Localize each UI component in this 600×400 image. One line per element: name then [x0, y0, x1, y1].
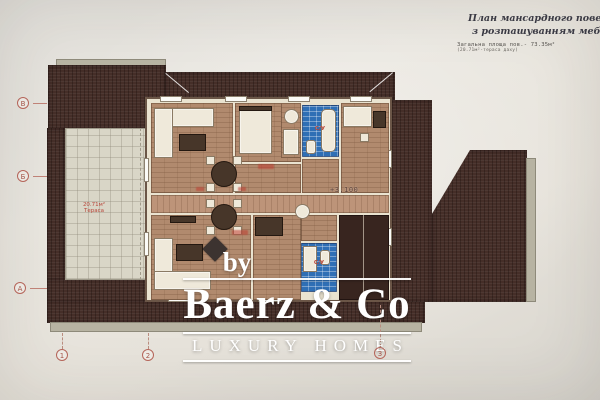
axis-leader [30, 288, 47, 289]
axis-leader [62, 333, 63, 349]
roof-right-mass [432, 150, 527, 302]
watermark-brand: Baerz & Co [183, 280, 411, 330]
bed-top-middle [239, 106, 272, 154]
dining-chair [233, 156, 242, 165]
coffee-table-top [179, 134, 206, 151]
room-label-blob [232, 230, 248, 235]
room-label-blob [238, 187, 246, 191]
roof-gutter-right [526, 158, 536, 302]
dining-chair [206, 156, 215, 165]
terrace-label: 20.71м² Тераса [72, 202, 116, 214]
dining-chair [206, 226, 215, 235]
axis-row-marker-v: В [17, 97, 29, 109]
window-top-1 [160, 96, 182, 102]
niche-laundry-bottom [301, 215, 337, 241]
room-label-blob [196, 187, 204, 191]
drawing-title-line2: з розташуванням меблів М 1: [468, 25, 600, 38]
wardrobe-bottom [255, 217, 283, 236]
elevation-mark: +3,100 [330, 186, 358, 194]
desk-top-right [373, 111, 386, 128]
window-top-4 [350, 96, 372, 102]
axis-row-marker-b: Б [17, 170, 29, 182]
dining-chair [206, 199, 215, 208]
drawing-title-line1: План мансардного поверху [468, 12, 600, 25]
watermark-by: by [63, 248, 411, 276]
window-top-3 [288, 96, 310, 102]
axis-row-marker-a: А [14, 282, 26, 294]
terrace-door-top [144, 158, 149, 182]
desk-chair-top-right [360, 133, 369, 142]
bed-top-right [343, 106, 372, 127]
axis-leader [148, 333, 149, 349]
axis-col-marker-1: 1 [56, 349, 68, 361]
dining-chair [206, 183, 215, 192]
toilet-top [306, 140, 316, 154]
room-label-blob [258, 164, 274, 169]
axis-leader [33, 176, 47, 177]
sofa-top-vertical [154, 108, 173, 158]
washing-machine-bottom [295, 204, 310, 219]
sink-cabinet-top [283, 129, 299, 155]
watermark-logo: by Baerz & Co LUXURY HOMES [183, 248, 411, 362]
tv-cabinet-bottom [170, 216, 196, 223]
drawing-title: План мансардного поверху з розташуванням… [468, 12, 600, 38]
window-top-2 [225, 96, 247, 102]
floorplan-photo: План мансардного поверху з розташуванням… [0, 0, 600, 400]
corridor [151, 195, 389, 213]
axis-col-marker-2: 2 [142, 349, 154, 361]
terrace-area-line: (20.71м²-тераса даху) [457, 48, 555, 54]
terrace-name: Тераса [72, 208, 116, 214]
bed-headboard-top [239, 106, 272, 111]
axis-col-marker-3: 3 [374, 347, 386, 359]
bathroom-top-label: С/У [305, 126, 335, 132]
washing-machine-top [284, 109, 299, 124]
dining-chair [233, 199, 242, 208]
total-area-note: Загальна площа пов.- 73.35м² (20.71м²-те… [457, 42, 555, 54]
watermark-rule-bottom [183, 360, 411, 362]
axis-leader [33, 103, 47, 104]
